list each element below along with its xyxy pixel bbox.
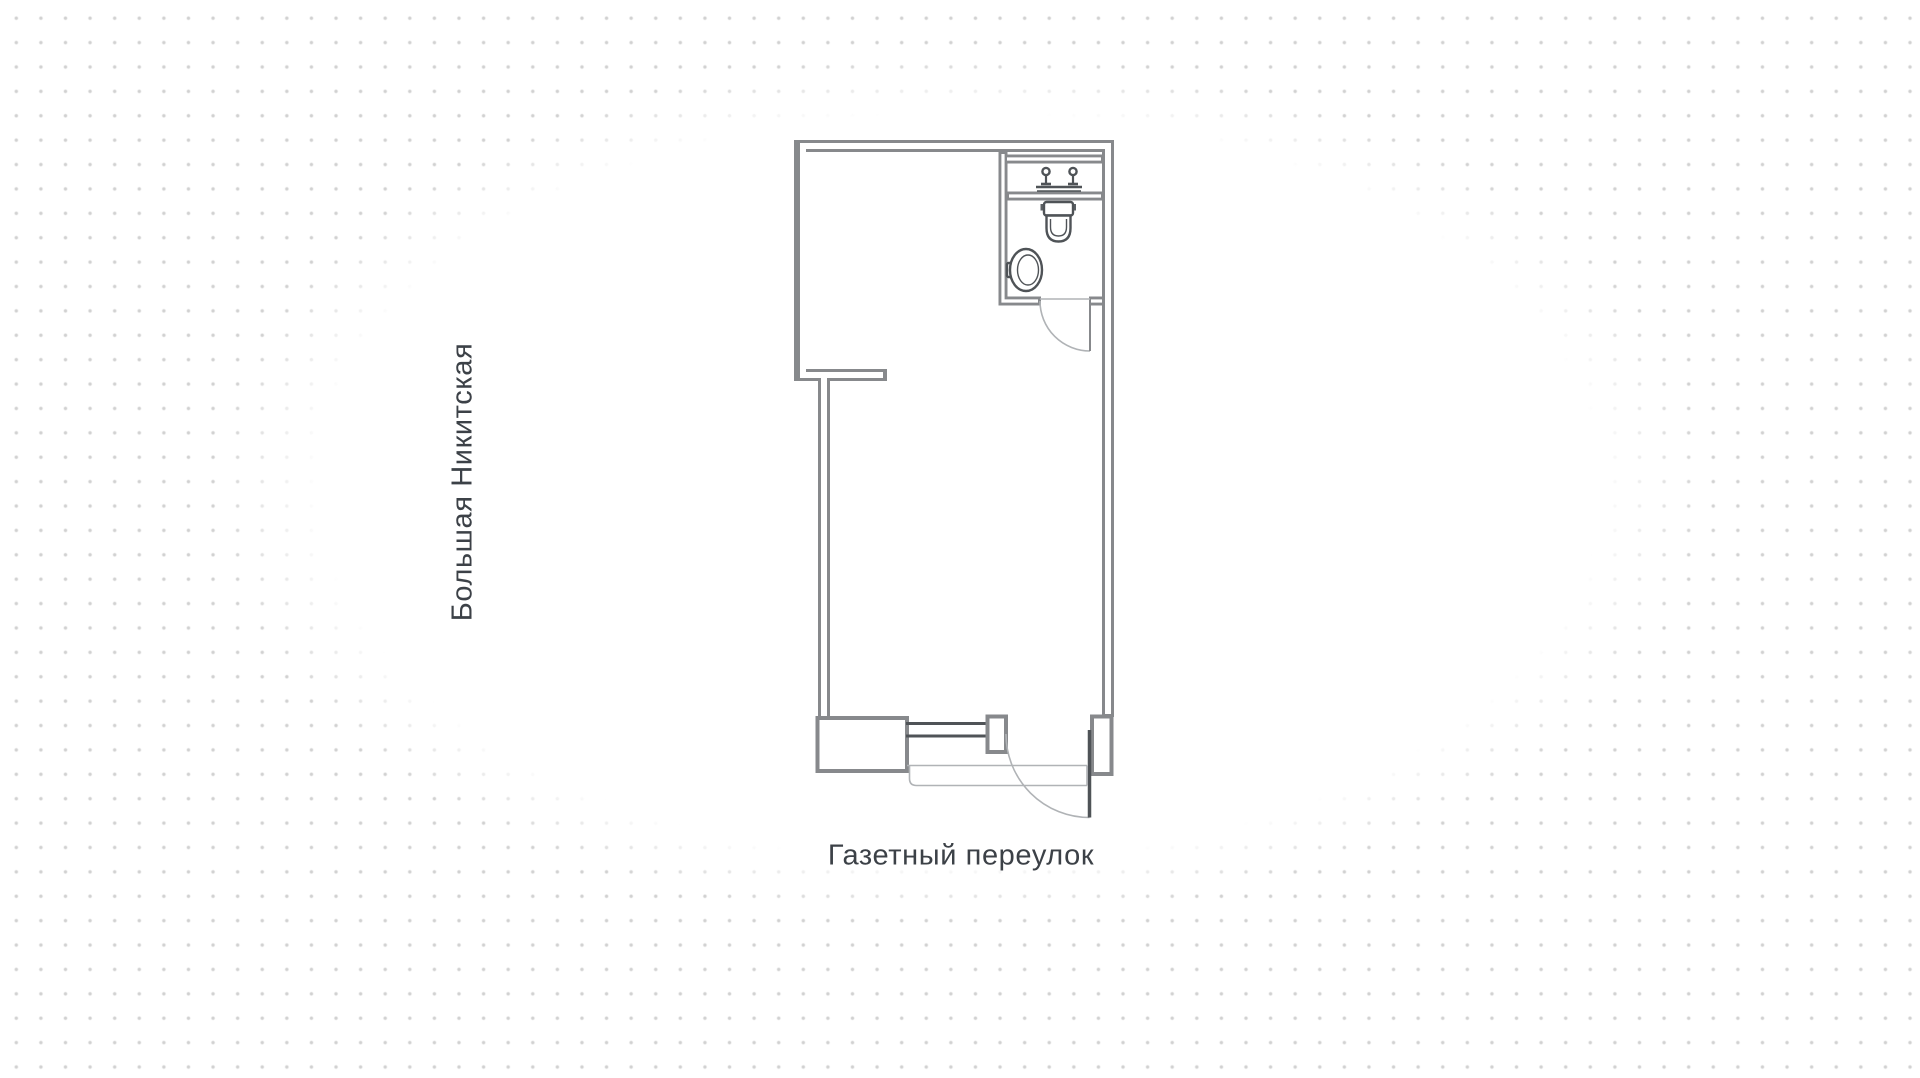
toilet-icon — [1041, 202, 1077, 242]
bathroom-door — [1040, 299, 1090, 351]
toilet-tank — [1044, 202, 1073, 216]
bathroom-door-swing-arc — [1040, 301, 1090, 351]
floor-plan — [0, 0, 1920, 1078]
entrance-steps — [907, 766, 1087, 786]
entrance-door — [1006, 730, 1090, 818]
wall-pier-left — [818, 718, 908, 771]
faucet-right-handle — [1069, 168, 1076, 175]
street-label-left: Большая Никитская — [447, 343, 480, 622]
washbasin-icon — [1007, 249, 1042, 291]
floor-plan-page: Большая Никитская Газетный переулок — [0, 0, 1920, 1078]
wall-pier-right — [1092, 717, 1112, 775]
entrance-zone — [818, 717, 1112, 818]
entrance-door-swing-arc — [1006, 734, 1090, 818]
storefront-window — [906, 724, 988, 737]
step-line-lower — [910, 766, 1088, 786]
street-label-bottom: Газетный переулок — [828, 840, 1094, 873]
door-post — [988, 717, 1007, 753]
faucet-left-handle — [1042, 168, 1049, 175]
faucet-icon — [1036, 168, 1082, 191]
